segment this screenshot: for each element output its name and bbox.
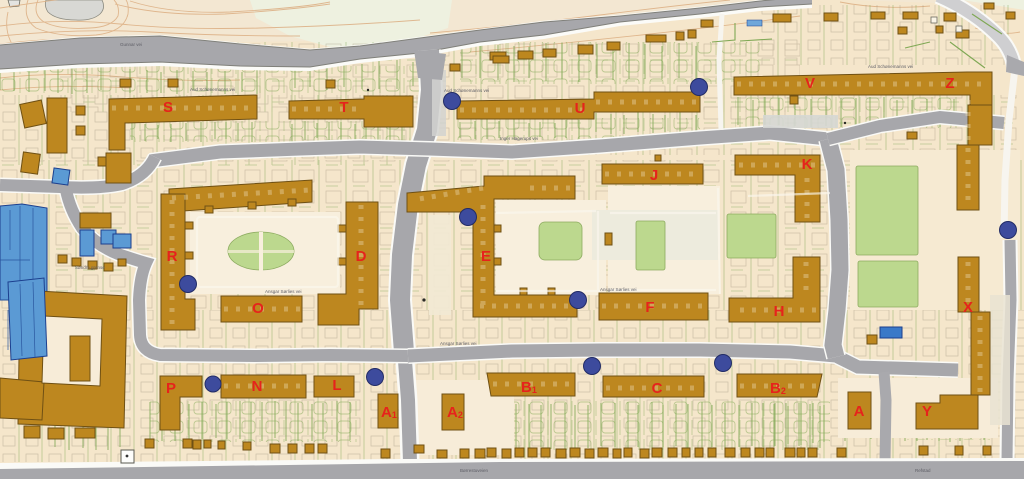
svg-text:A: A	[854, 403, 865, 420]
svg-text:O: O	[252, 300, 264, 317]
svg-text:L: L	[332, 377, 341, 394]
svg-text:R: R	[167, 248, 178, 265]
svg-text:J: J	[650, 167, 658, 184]
svg-text:K: K	[802, 156, 813, 173]
svg-text:Børrestuveien: Børrestuveien	[460, 468, 489, 473]
svg-text:X: X	[963, 299, 973, 316]
svg-text:D: D	[356, 248, 367, 265]
svg-text:Refstad: Refstad	[915, 468, 931, 473]
svg-text:Ansgar Sørlies vei: Ansgar Sørlies vei	[600, 287, 637, 292]
svg-text:U: U	[575, 100, 586, 117]
svg-text:Søndre grense: Søndre grense	[75, 265, 105, 270]
svg-text:S: S	[163, 99, 173, 116]
svg-text:Gunnar vei: Gunnar vei	[120, 42, 142, 47]
svg-text:F: F	[645, 299, 654, 316]
svg-text:Aud Schønemanns vei: Aud Schønemanns vei	[190, 87, 235, 92]
svg-text:Aud Schønemanns vei: Aud Schønemanns vei	[444, 88, 489, 93]
svg-text:Ansgar Sørlies vei: Ansgar Sørlies vei	[440, 341, 477, 346]
svg-text:T: T	[339, 99, 348, 116]
svg-text:V: V	[805, 75, 815, 92]
svg-text:P: P	[166, 380, 176, 397]
svg-text:C: C	[652, 380, 663, 397]
svg-text:Y: Y	[922, 403, 932, 420]
svg-text:Z: Z	[945, 75, 954, 92]
svg-text:Ansgar Sørlies vei: Ansgar Sørlies vei	[265, 289, 302, 294]
svg-text:Aud Schønemanns vei: Aud Schønemanns vei	[868, 64, 913, 69]
svg-text:N: N	[252, 378, 263, 395]
svg-text:H: H	[774, 303, 785, 320]
svg-text:Inger Hagerups vei: Inger Hagerups vei	[500, 136, 538, 141]
svg-text:E: E	[481, 248, 491, 265]
